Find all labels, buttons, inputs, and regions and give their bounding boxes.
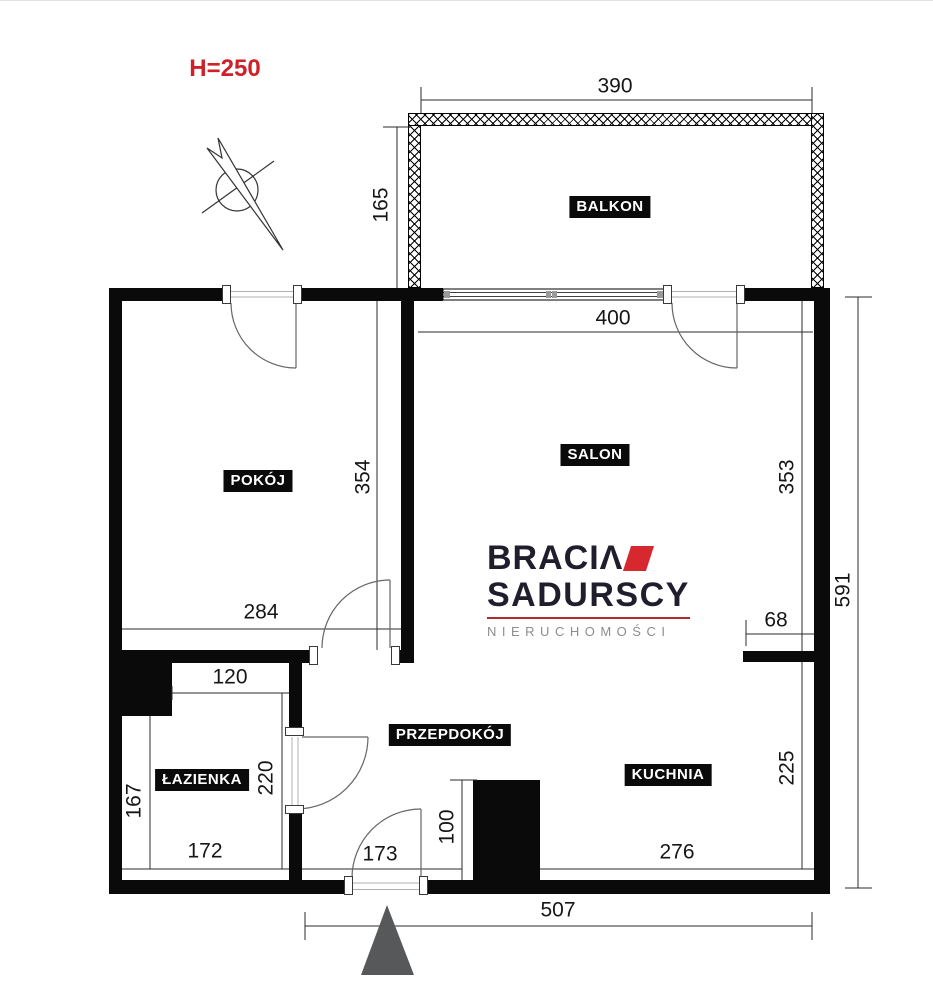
dim-kitchen-width: 276: [659, 842, 694, 863]
room-label-balkon: BALKON: [569, 196, 650, 218]
salon-window: [443, 289, 664, 300]
room-label-salon: SALON: [561, 444, 630, 466]
north-arrow-icon: [202, 138, 283, 250]
dim-salon-depth: 353: [777, 459, 798, 494]
dim-pillar-depth: 100: [437, 809, 458, 844]
entrance-marker-icon: [361, 905, 414, 975]
room-label-kuchnia: KUCHNIA: [625, 764, 712, 786]
logo-brand-text: BRACI: [487, 541, 600, 575]
logo-brand-glyph: Λ: [600, 541, 624, 575]
dim-pokoj-depth: 354: [353, 459, 374, 494]
dim-kitchen-depth: 225: [777, 750, 798, 785]
logo-rule: [487, 617, 690, 619]
agency-logo: BRACIΛ SADURSCY NIERUCHOMOŚCI: [487, 541, 693, 639]
dim-salon-width: 400: [595, 308, 630, 329]
dim-balcony-depth: 165: [371, 187, 392, 222]
room-label-przedpokoj: PRZEPDOKÓJ: [389, 724, 511, 746]
dim-balcony-width: 390: [597, 76, 632, 97]
floor-plan: H=250 BALKON POKÓJ SALON ŁAZIENKA PRZEPD…: [0, 0, 933, 1001]
dim-bath-top: 120: [212, 667, 247, 688]
dim-pokoj-width: 284: [243, 602, 278, 623]
height-note: H=250: [189, 55, 260, 83]
logo-line2: SADURSCY: [487, 578, 693, 612]
dim-bath-right: 220: [256, 760, 277, 795]
dim-bath-width: 172: [187, 841, 222, 862]
logo-red-mark-icon: [623, 546, 654, 571]
dim-kitchen-pass: 68: [764, 610, 787, 631]
dim-hall-width: 173: [362, 844, 397, 865]
logo-line1: BRACIΛ: [487, 541, 693, 575]
dim-right-total: 591: [833, 572, 854, 607]
logo-line3: NIERUCHOMOŚCI: [487, 624, 693, 639]
dim-bath-left: 167: [124, 783, 145, 818]
dimension-lines: [122, 87, 872, 940]
room-label-lazienka: ŁAZIENKA: [155, 769, 249, 791]
room-label-pokoj: POKÓJ: [223, 470, 292, 492]
dim-bottom-total: 507: [540, 900, 575, 921]
plan-linework: [0, 0, 933, 1001]
